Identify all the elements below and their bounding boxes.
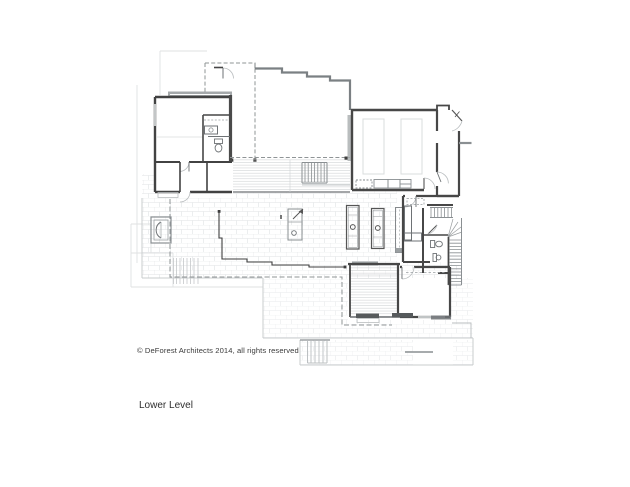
entry-door xyxy=(452,110,462,131)
floor-plan-sheet: © DeForest Architects 2014, all rights r… xyxy=(0,0,630,487)
toilet-icon xyxy=(431,241,443,248)
copyright-text: © DeForest Architects 2014, all rights r… xyxy=(137,346,299,355)
bathroom xyxy=(203,115,231,162)
floor-plan-drawing xyxy=(0,0,630,487)
garage-cabinets xyxy=(356,180,411,189)
parking-stall xyxy=(401,119,422,174)
parking-stall xyxy=(363,119,384,174)
sink-icon xyxy=(433,254,441,262)
stepped-site-wall xyxy=(255,63,350,110)
mudroom xyxy=(155,162,232,202)
sink-icon xyxy=(209,128,213,132)
garage xyxy=(348,106,472,197)
deck xyxy=(230,157,350,193)
level-label: Lower Level xyxy=(139,400,193,411)
toilet-icon xyxy=(215,139,223,152)
bedroom-suite xyxy=(154,92,232,203)
